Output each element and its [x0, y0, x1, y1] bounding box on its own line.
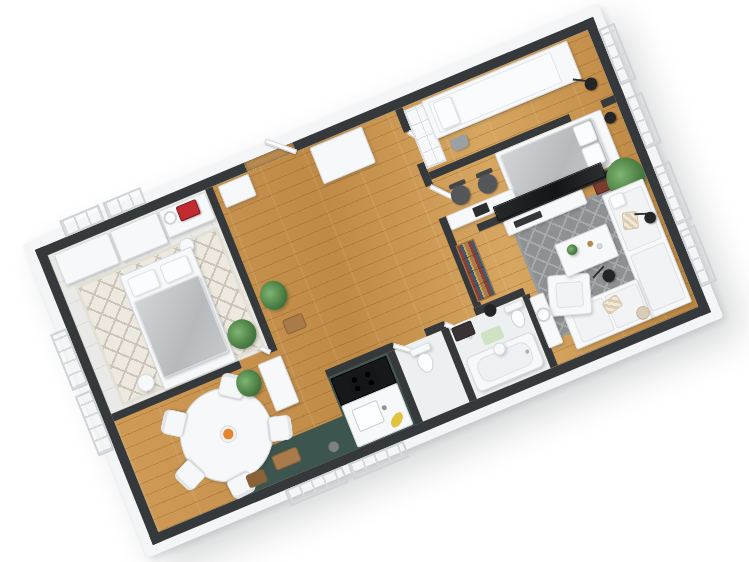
armchair-cushion: [555, 281, 584, 309]
dining-chair: [268, 414, 294, 442]
floorplan-render: [0, 0, 749, 562]
apartment-plan: [35, 17, 711, 545]
